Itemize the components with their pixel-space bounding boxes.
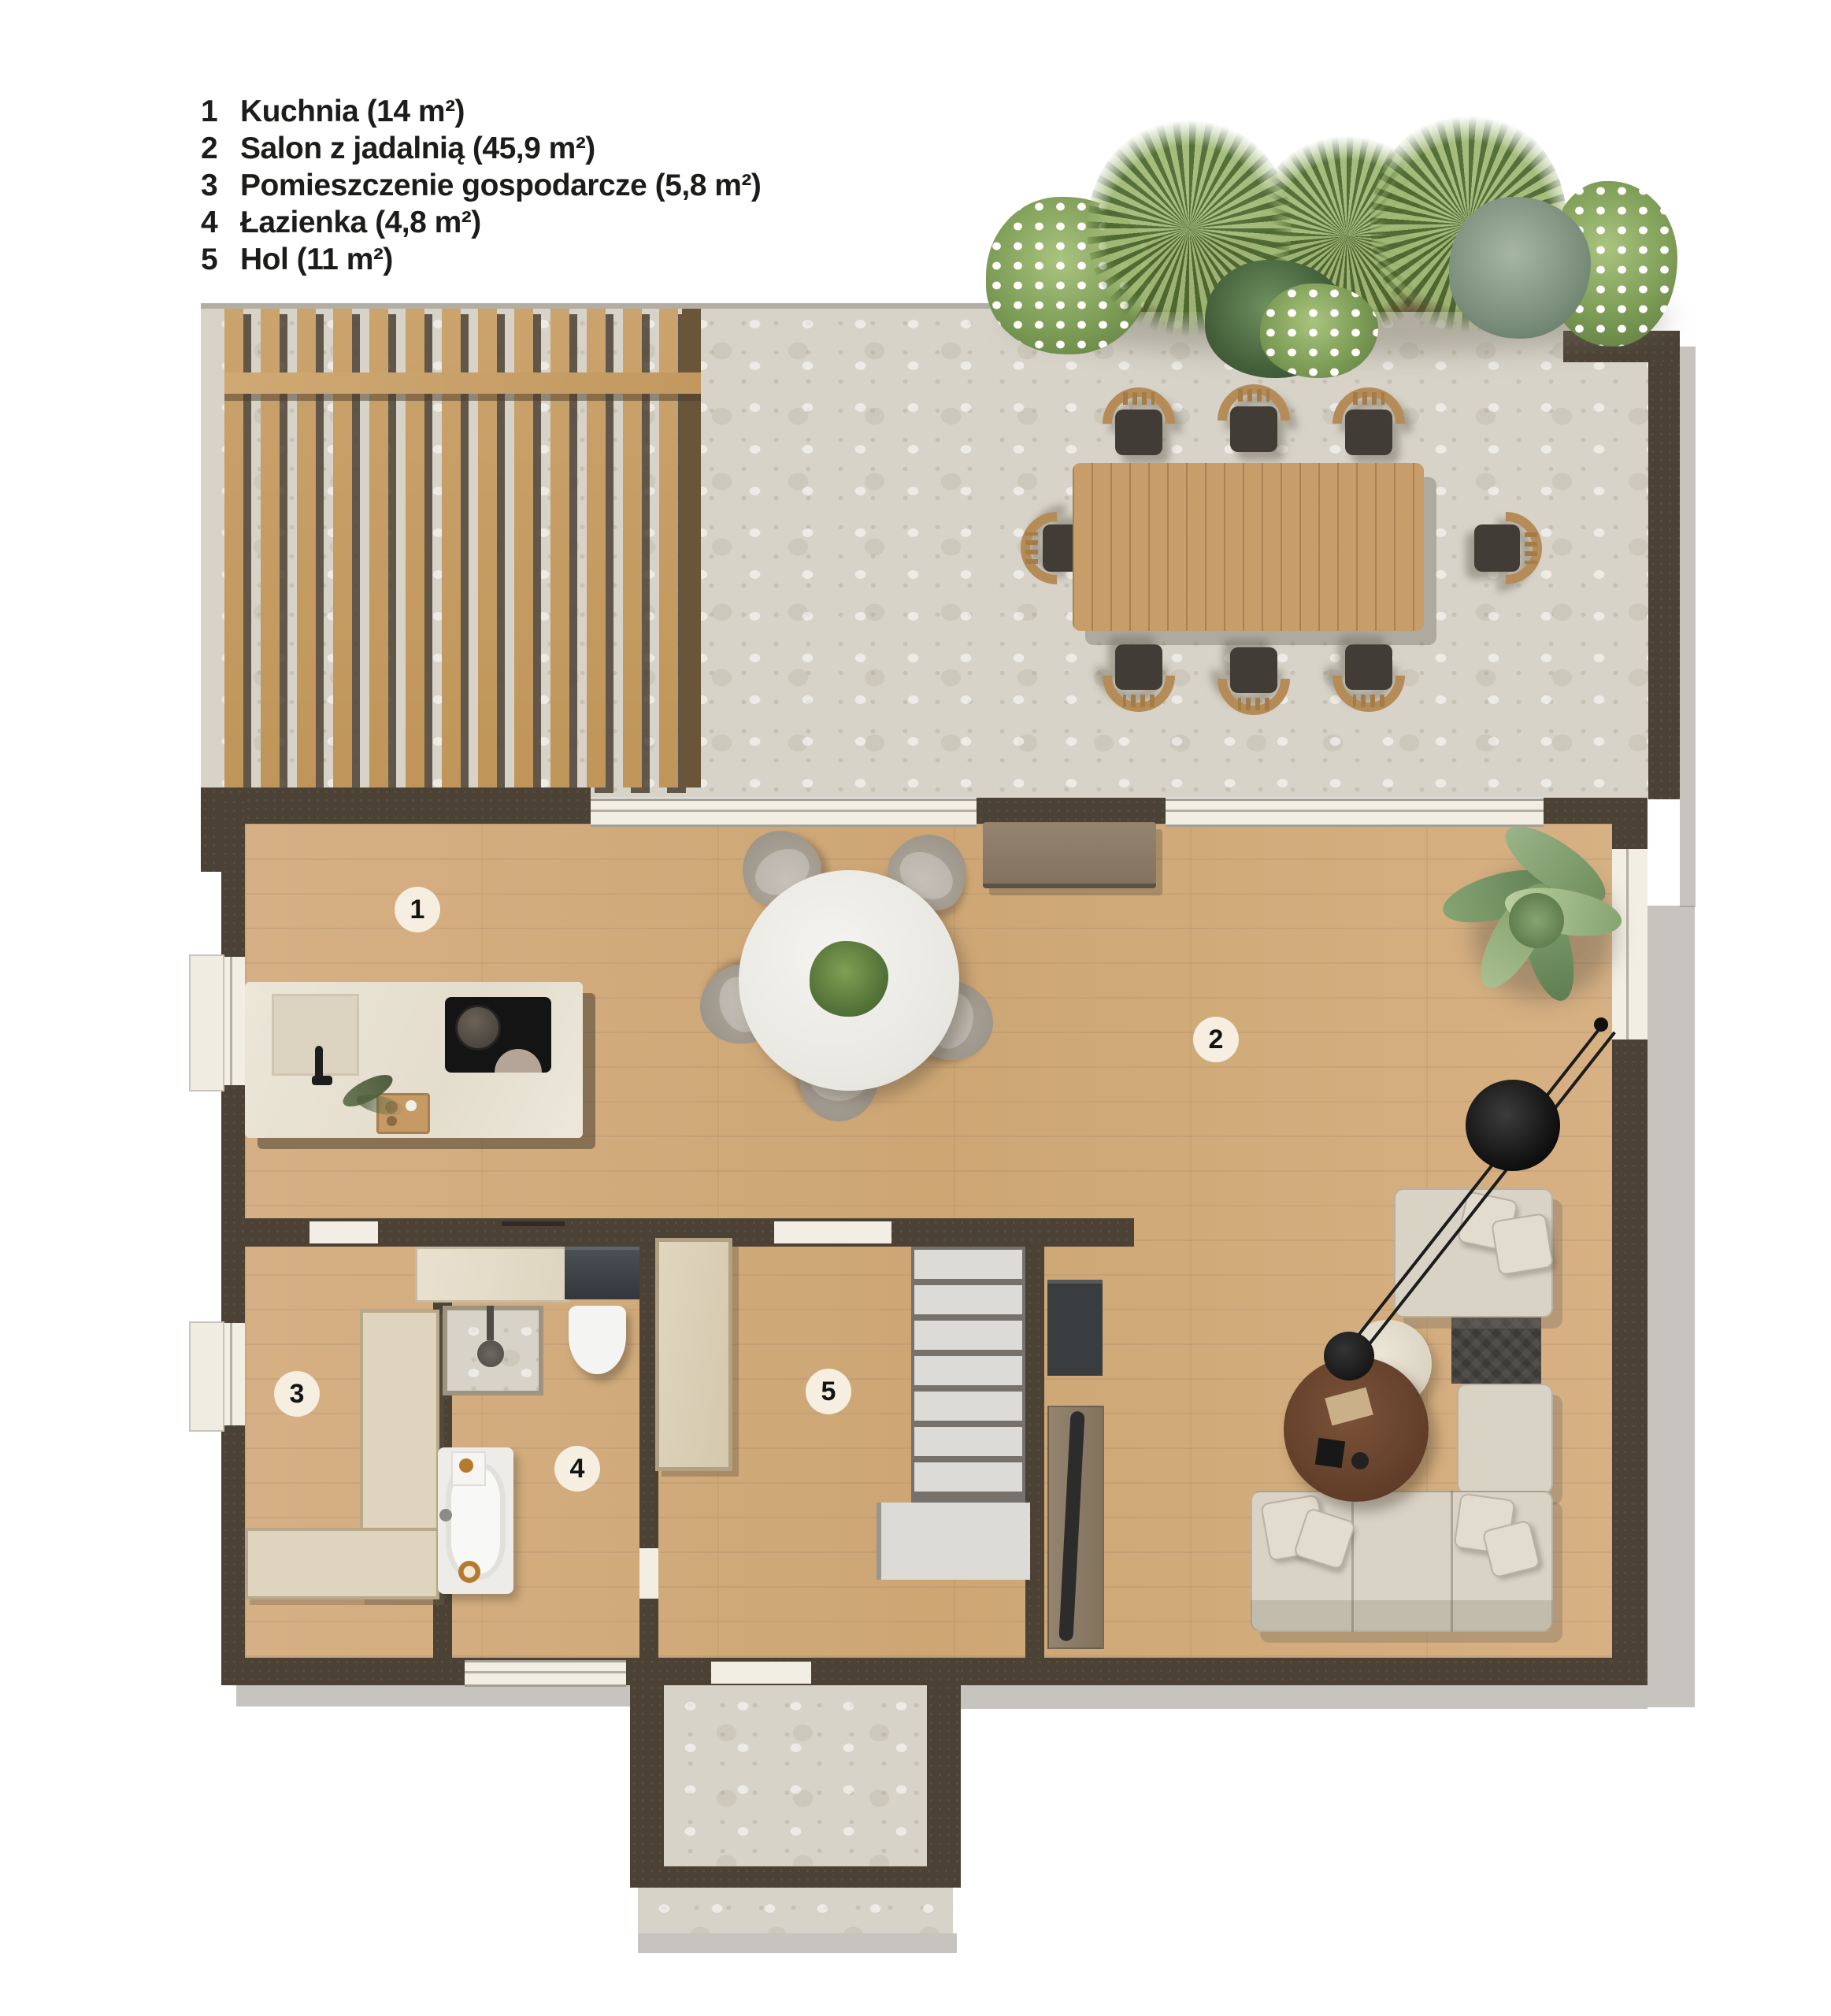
living-corner-plant: [1441, 827, 1630, 1024]
window-bottom: [465, 1660, 626, 1687]
pergola-cross-beam: [224, 372, 701, 394]
plant-flowers-small: [1260, 283, 1378, 378]
door-room3: [309, 1221, 378, 1243]
bath-faucet: [439, 1509, 452, 1521]
window-sliding-door-left: [591, 799, 977, 827]
lamp-counterweight: [1594, 1017, 1608, 1032]
outdoor-chair: [1218, 643, 1290, 715]
stair-tread: [914, 1427, 1022, 1456]
window-kitchen: [221, 957, 245, 1085]
fireplace-unit: [1047, 1280, 1103, 1376]
towel-rail: [502, 1221, 565, 1226]
coffee-table-box: [1315, 1438, 1345, 1468]
plant-begonia: [1449, 197, 1591, 339]
outdoor-chair: [1218, 384, 1290, 457]
room-marker-1: 1: [395, 887, 440, 932]
bath-accessory: [458, 1561, 480, 1583]
kitchen-faucet-base: [312, 1076, 332, 1085]
outdoor-chair: [1332, 639, 1405, 712]
window-sill-left-1: [189, 954, 224, 1091]
window-room3: [221, 1323, 245, 1425]
outdoor-chair: [1103, 387, 1175, 460]
cooktop-zone: [495, 1049, 542, 1073]
utility-bench-horizontal: [245, 1528, 439, 1599]
sofa-middle-seat: [1457, 1384, 1553, 1494]
porch-step: [638, 1888, 953, 1933]
stair-tread: [914, 1392, 1022, 1421]
legend-label: Łazienka (4,8 m²): [229, 204, 481, 241]
sofa-pillow: [1491, 1213, 1554, 1276]
stair-tread: [914, 1250, 1022, 1279]
room-marker-5: 5: [806, 1369, 851, 1414]
floor-plan: 1 2 3 4 5 1 Kuchnia (14 m²) 2 Salon z ja…: [0, 0, 1831, 2016]
legend-number: 4: [201, 204, 229, 241]
legend-label: Hol (11 m²): [229, 241, 393, 278]
room-marker-4: 4: [554, 1446, 600, 1492]
legend-row: 3 Pomieszczenie gospodarcze (5,8 m²): [201, 167, 761, 204]
legend-number: 1: [201, 93, 229, 130]
outdoor-chair: [1103, 639, 1175, 712]
lamp-shade-small: [1324, 1332, 1374, 1380]
wall-stairs-living: [1025, 1247, 1044, 1658]
outdoor-dining-table: [1073, 463, 1424, 631]
legend-number: 2: [201, 130, 229, 167]
legend-row: 5 Hol (11 m²): [201, 241, 761, 278]
legend-number: 3: [201, 167, 229, 204]
sideboard: [983, 822, 1156, 888]
wall-top-mid: [977, 798, 1166, 824]
cooking-pot: [455, 1005, 501, 1051]
wall-top-kitchen: [201, 787, 591, 824]
stair-tread: [914, 1462, 1022, 1492]
shadow-right: [1648, 906, 1695, 1707]
porch-wall-right: [927, 1658, 961, 1888]
wall-left-stub: [201, 824, 221, 872]
window-sill-left-2: [189, 1321, 224, 1432]
coffee-table-sphere: [1351, 1452, 1369, 1469]
window-sliding-door-right: [1166, 799, 1544, 827]
porch-wall-left: [630, 1658, 664, 1888]
legend-row: 1 Kuchnia (14 m²): [201, 93, 761, 130]
porch-floor: [664, 1685, 927, 1866]
door-entrance: [711, 1662, 811, 1684]
dining-table-plant: [810, 941, 888, 1017]
wall-terrace-right: [1648, 335, 1680, 799]
legend-label: Salon z jadalnią (45,9 m²): [229, 130, 595, 167]
shadow-right-top: [1680, 346, 1696, 907]
door-hall: [774, 1221, 891, 1243]
outdoor-chair: [1332, 387, 1405, 460]
shower-pipe: [487, 1306, 494, 1340]
legend-row: 2 Salon z jadalnią (45,9 m²): [201, 130, 761, 167]
stair-tread: [914, 1321, 1022, 1350]
porch-wall-bottom: [630, 1866, 961, 1888]
legend-label: Pomieszczenie gospodarcze (5,8 m²): [229, 167, 761, 204]
legend-row: 4 Łazienka (4,8 m²): [201, 204, 761, 241]
bath-bottle: [459, 1458, 473, 1473]
outdoor-chair: [1470, 512, 1542, 584]
room-marker-2: 2: [1193, 1017, 1239, 1062]
shadow-bottom-left: [236, 1685, 639, 1707]
shadow-porch: [638, 1933, 957, 1953]
door-bathroom: [639, 1548, 658, 1599]
stair-landing: [877, 1503, 1030, 1580]
stair-tread: [914, 1285, 1022, 1314]
lamp-shade-large: [1466, 1080, 1560, 1171]
legend-label: Kuchnia (14 m²): [229, 93, 465, 130]
shadow-bottom-right: [959, 1685, 1648, 1709]
legend-number: 5: [201, 241, 229, 278]
hall-wardrobe: [655, 1238, 732, 1471]
bath-counter: [415, 1247, 569, 1303]
washing-machine: [565, 1247, 639, 1299]
room-marker-3: 3: [274, 1371, 320, 1417]
legend: 1 Kuchnia (14 m²) 2 Salon z jadalnią (45…: [201, 93, 761, 278]
stair-tread: [914, 1356, 1022, 1385]
shower-head: [477, 1340, 504, 1367]
